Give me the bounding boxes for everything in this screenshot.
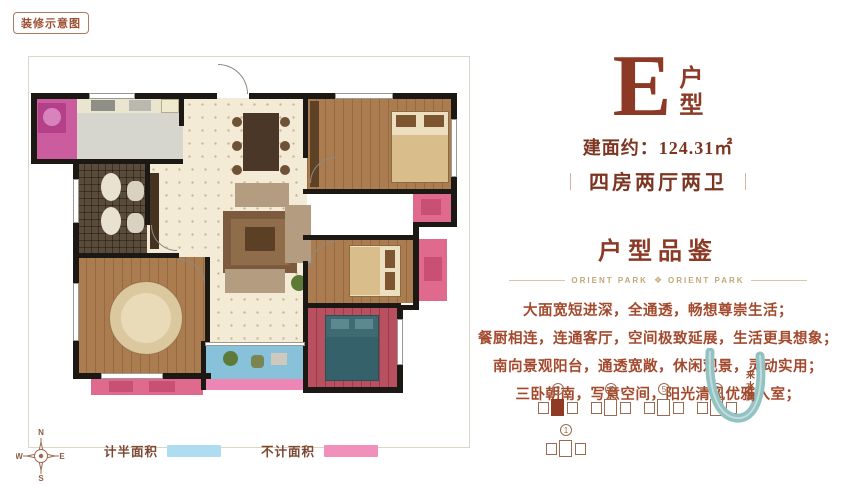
bed-south-pillow [331, 319, 349, 329]
sofa-top [235, 183, 289, 207]
toilet [127, 213, 144, 233]
appreciation-section: 户型品鉴 ORIENT PARK ❖ ORIENT PARK 大面宽短进深，全通… [478, 231, 838, 404]
room-layout-text: ｜ 四房两厅两卫 ｜ [478, 166, 838, 195]
wall [31, 93, 37, 164]
sofa-bottom [225, 269, 285, 293]
window [397, 319, 403, 365]
bed-south-blanket [326, 337, 378, 380]
sofa-right [285, 205, 311, 263]
crest-icon: ❖ [654, 275, 662, 286]
dining-chair [232, 117, 242, 127]
window [335, 93, 393, 99]
dining-chair [232, 165, 242, 175]
bed-north-pillow [396, 115, 416, 127]
platform-north-item [421, 199, 441, 215]
dining-chair [232, 141, 242, 151]
window [451, 119, 457, 177]
round-bed-inner [121, 293, 171, 343]
excluded-area-swatch [324, 445, 378, 457]
bed-middle-pillow [385, 250, 395, 268]
wall [303, 235, 417, 240]
brand-divider: ORIENT PARK ❖ ORIENT PARK [478, 275, 838, 286]
wall [145, 163, 150, 225]
window [101, 373, 163, 379]
balcony-plant [223, 351, 238, 366]
washer-drum [43, 108, 61, 126]
half-area-swatch [167, 445, 221, 457]
bed-middle-pillow [385, 272, 395, 290]
bed-middle-blanket [350, 247, 380, 295]
selling-point: 南向景观阳台，通透宽敞，休闲观景，灵动实用； [478, 355, 838, 376]
legend-item-excluded-area: 不计面积 [261, 441, 378, 460]
unit-type-word: 户 型 [679, 66, 703, 120]
platform-master [91, 377, 203, 395]
bed-south-pillow [355, 319, 373, 329]
window [205, 342, 305, 346]
platform-middle-item [424, 257, 442, 281]
dining-chair [280, 165, 290, 175]
door-arc [218, 64, 248, 94]
river-name-label: 来水湾 [744, 370, 757, 403]
separator-bar: ｜ [562, 168, 579, 193]
info-column: E 户 型 建面约：124.31㎡ ｜ 四房两厅两卫 ｜ 户型品鉴 ORIENT… [478, 50, 838, 411]
legend-item-half-area: 计半面积 [104, 441, 221, 460]
svg-text:E: E [59, 452, 65, 461]
wall [303, 303, 401, 308]
selling-point: 餐厨相连，连通客厅，空间极致延展，生活更具想象； [478, 327, 838, 348]
unit-type-title: E 户 型 [478, 50, 838, 125]
bath-sink [101, 207, 121, 235]
divider-line [751, 280, 807, 281]
building-icon: 2 [536, 383, 580, 419]
building-icon: 3 [589, 383, 633, 419]
kitchen-sink [129, 100, 151, 111]
wall [179, 98, 184, 126]
svg-text:N: N [38, 428, 44, 437]
divider-line [509, 280, 565, 281]
stove [91, 100, 115, 111]
wall [205, 257, 210, 343]
river-icon [700, 348, 774, 434]
wall [413, 222, 457, 227]
platform-master-item [149, 381, 175, 392]
wall [303, 98, 308, 158]
coffee-table [245, 227, 275, 251]
window [73, 179, 79, 223]
wall [303, 387, 403, 393]
balcony-edge [205, 379, 305, 390]
floorplan [28, 56, 470, 448]
built-area-text: 建面约：124.31㎡ [478, 134, 838, 160]
balcony-mat [271, 353, 287, 365]
dining-table [243, 113, 279, 171]
platform-master-item [109, 381, 133, 392]
bath-sink [101, 173, 121, 201]
dining-chair [280, 117, 290, 127]
compass-icon: N E S W [16, 426, 66, 482]
river-graphic: 来水湾 [700, 348, 774, 434]
section-title: 户型品鉴 [478, 231, 838, 266]
area-legend: 计半面积 不计面积 [104, 441, 378, 460]
dining-chair [280, 141, 290, 151]
bed-north-pillow [424, 115, 444, 127]
toilet [127, 181, 144, 201]
wall [73, 253, 179, 258]
wall [303, 189, 455, 194]
building-icon: 1 [544, 424, 588, 460]
fridge [161, 99, 179, 113]
selling-point: 大面宽短进深，全通透，畅想尊崇生活； [478, 299, 838, 320]
separator-bar: ｜ [737, 168, 754, 193]
building-icon: 5 [642, 383, 686, 419]
bed-north-blanket [392, 135, 448, 182]
window [73, 283, 79, 341]
balcony-chair [251, 355, 264, 368]
flyer-page: 装修示意图 E 户 型 建面约：124.31㎡ ｜ 四房两厅两卫 ｜ 户型品鉴 … [0, 0, 850, 486]
compass: N E S W [16, 426, 66, 486]
decoration-note-badge: 装修示意图 [13, 12, 89, 34]
wall [201, 341, 206, 390]
wall [303, 303, 308, 393]
svg-text:W: W [16, 452, 23, 461]
wall [31, 159, 183, 164]
wall [303, 261, 308, 305]
window [89, 93, 135, 99]
svg-text:S: S [38, 474, 44, 482]
unit-type-letter: E [613, 50, 672, 125]
